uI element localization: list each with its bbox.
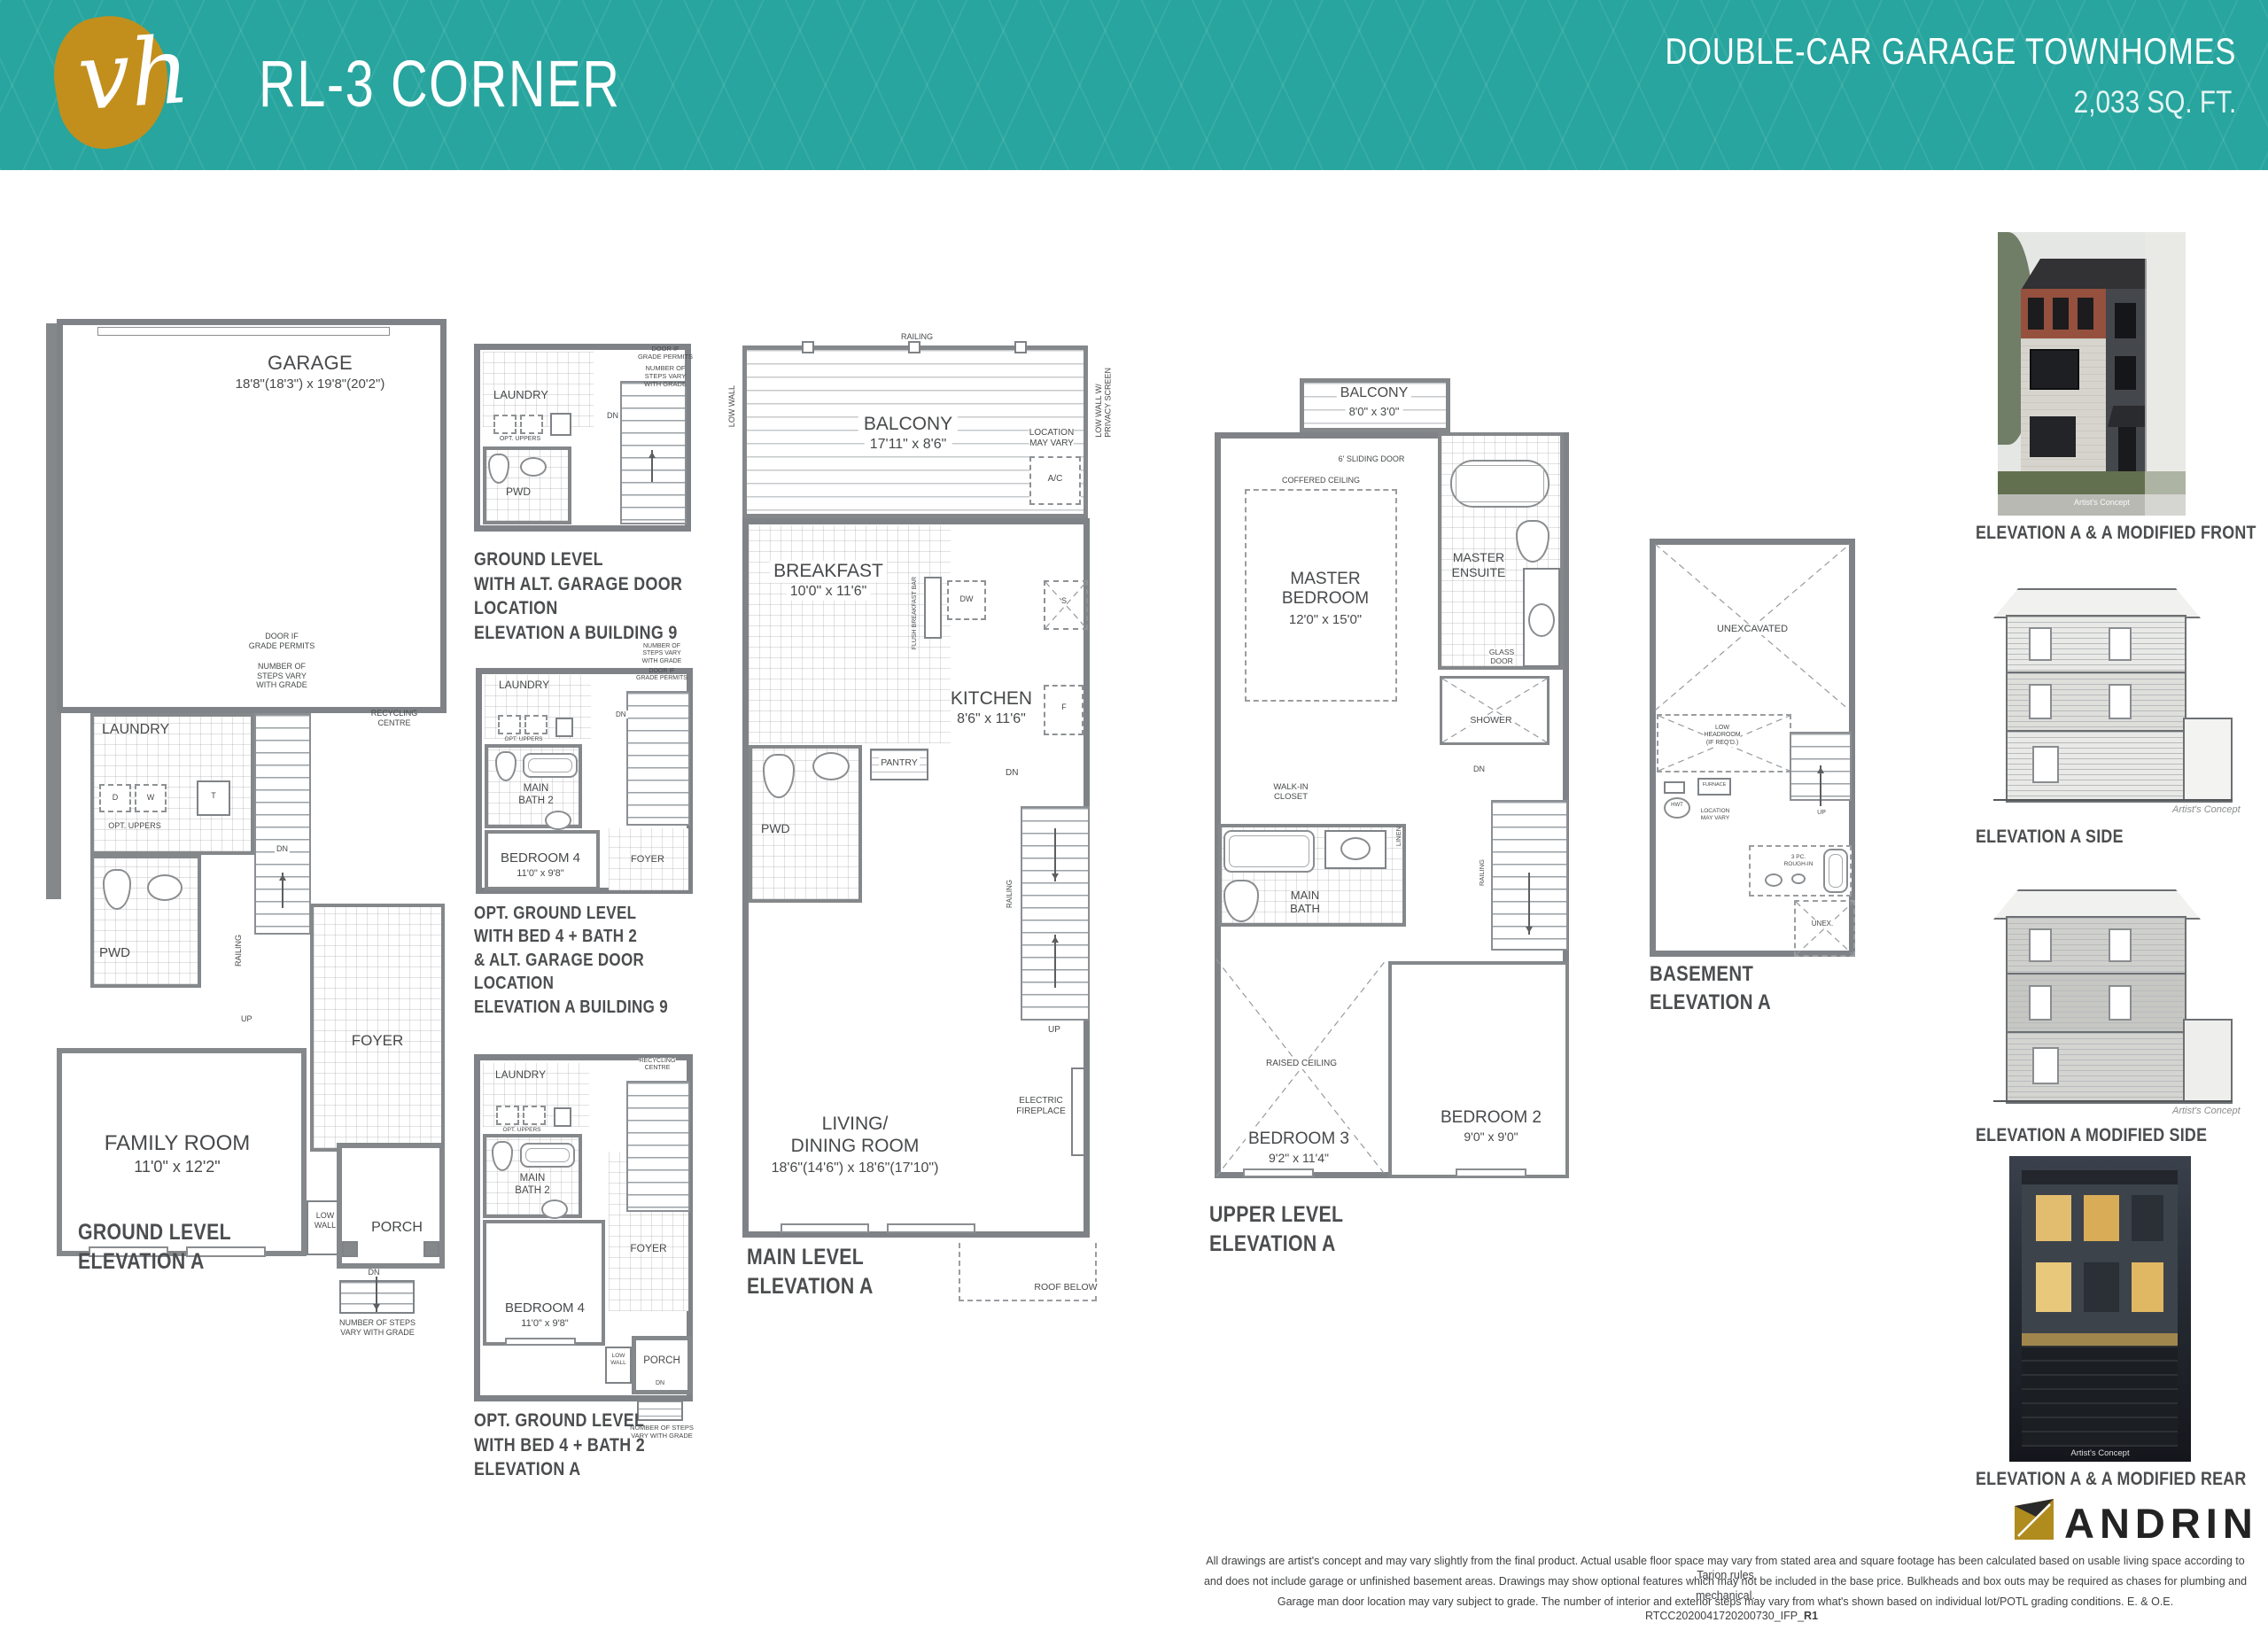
note-steps-vary: NUMBER OF STEPS VARY WITH GRADE <box>642 643 682 665</box>
plan-caption-alt2: OPT. GROUND LEVEL WITH BED 4 + BATH 2 & … <box>474 902 693 1019</box>
room-label-laundry: LAUNDRY <box>499 679 549 691</box>
room-label-bed2: BEDROOM 2 <box>1441 1108 1542 1128</box>
plan-caption-main: MAIN LEVEL ELEVATION A <box>747 1243 874 1301</box>
lit-window <box>2132 1262 2163 1312</box>
low-headroom-label: LOW HEADROOM (IF REQ'D.) <box>1704 725 1740 747</box>
dn-label: DN <box>656 1380 664 1387</box>
room-dims-bed4: 11'0" x 9'8" <box>521 1318 568 1330</box>
railing-post <box>1014 341 1027 353</box>
roughin-label: 3 PC. ROUGH-IN <box>1784 854 1814 867</box>
doc-code: RTCC2020041720200730_IFP_ <box>1645 1610 1804 1622</box>
note-steps-vary: NUMBER OF STEPS VARY WITH GRADE <box>256 662 307 690</box>
room-label-mainbath: MAIN BATH <box>1290 889 1320 916</box>
up-arrow-icon <box>1054 935 1056 988</box>
dn-label: DN <box>1473 765 1485 774</box>
wic-label: WALK-IN CLOSET <box>1273 782 1308 802</box>
room-label-laundry: LAUNDRY <box>493 388 548 401</box>
breakfast-island <box>924 577 942 639</box>
roof-below-label: ROOF BELOW <box>1031 1282 1099 1293</box>
room-label-foyer: FOYER <box>630 1242 666 1254</box>
tub-fixture <box>1450 460 1550 508</box>
up-arrow-icon <box>1820 765 1821 806</box>
bed4-window <box>505 1338 576 1346</box>
window <box>2030 349 2079 390</box>
window <box>2029 928 2052 962</box>
furnace-label: FURNACE <box>1703 782 1727 788</box>
breakfast-area <box>749 525 951 743</box>
plan-upper-level: BALCONY 8'0" x 3'0" 6' SLIDING DOOR COFF… <box>1208 377 1597 1262</box>
plan-caption-alt3: OPT. GROUND LEVEL WITH BED 4 + BATH 2 EL… <box>474 1409 645 1482</box>
down-arrow-icon <box>1528 873 1530 935</box>
dishwasher-label: DW <box>960 594 974 604</box>
room-label-balcony: BALCONY <box>1337 385 1411 402</box>
ac-label: A/C <box>1048 474 1063 485</box>
window <box>2109 928 2132 962</box>
entry-canopy <box>2108 406 2145 427</box>
up-label: UP <box>1048 1025 1060 1036</box>
glass-door-label: GLASS DOOR <box>1489 648 1514 665</box>
stairs <box>626 1081 690 1212</box>
bedroom2-room <box>1388 961 1569 1178</box>
sink-fixture <box>812 752 850 780</box>
room-dims-family: 11'0" x 12'2" <box>134 1158 220 1176</box>
room-dims-living: 18'6"(14'6") x 18'6"(17'10") <box>772 1161 939 1177</box>
hwt-label: HWT <box>1671 803 1683 809</box>
artists-concept-note: Artist's Concept <box>2172 804 2241 815</box>
shower-label: SHOWER <box>1468 715 1513 726</box>
low-wall-label: LOW WALL <box>315 1211 336 1230</box>
note-door-grade: DOOR IF GRADE PERMITS <box>638 345 693 361</box>
window <box>2029 627 2052 661</box>
stairs-dn-label: DN <box>275 844 290 854</box>
ground-line <box>1993 1100 2233 1102</box>
tub-fixture <box>520 1143 575 1168</box>
railing-post <box>802 341 814 353</box>
window <box>2032 746 2059 783</box>
plan-caption-ground: GROUND LEVEL ELEVATION A <box>78 1218 231 1277</box>
linen-label: LINEN <box>1395 827 1403 846</box>
window <box>2029 985 2052 1021</box>
room-label-family: FAMILY ROOM <box>105 1131 250 1156</box>
room-label-porch: PORCH <box>643 1355 680 1368</box>
plan-ground-bed4: LAUNDRY OPT. UPPERS MAIN BATH 2 BEDROOM … <box>474 1054 740 1479</box>
shower-box <box>1440 676 1550 745</box>
room-label-pwd: PWD <box>506 485 531 498</box>
lit-window <box>2036 1262 2071 1312</box>
elevation-rear-photo: Artist's Concept <box>2009 1156 2191 1462</box>
sink-roughin <box>1791 873 1806 884</box>
window <box>2115 303 2136 338</box>
porch-side <box>2183 718 2233 803</box>
plan-main-level: RAILING BALCONY 17'11" x 8'6" LOW WALL L… <box>740 332 1152 1329</box>
plan-caption-basement: BASEMENT ELEVATION A <box>1650 960 1771 1016</box>
room-dims-bed4: 11'0" x 9'8" <box>517 868 563 880</box>
dryer-box <box>496 1106 519 1125</box>
vh-logo: vh <box>64 19 204 129</box>
room-label-bed3: BEDROOM 3 <box>1246 1130 1352 1149</box>
stairs <box>626 691 690 826</box>
washer-box <box>523 1106 546 1125</box>
dryer-box <box>498 715 521 734</box>
toilet-roughin <box>1765 873 1783 887</box>
product-type: DOUBLE-CAR GARAGE TOWNHOMES <box>1665 30 2236 73</box>
unexcavated-label: UNEXCAVATED <box>1714 624 1790 635</box>
caption-elevation-front: ELEVATION A & A MODIFIED FRONT <box>1976 523 2256 544</box>
opt-uppers-label: OPT. UPPERS <box>500 436 540 443</box>
andrin-logo-icon <box>2013 1497 2055 1541</box>
tank-box <box>550 413 571 436</box>
window <box>2028 298 2044 330</box>
dn-label: DN <box>614 710 628 718</box>
railing-post <box>908 341 920 353</box>
garage-door <box>2022 1346 2178 1447</box>
room-label-garage: GARAGE <box>268 352 353 375</box>
disclaimer-text: Garage man door location may vary subjec… <box>1278 1595 2173 1608</box>
lit-window <box>2084 1195 2119 1241</box>
room-dims-bed3: 9'2" x 11'4" <box>1266 1151 1332 1166</box>
artists-concept-watermark: Artist's Concept <box>2074 498 2130 507</box>
andrin-logo <box>2013 1497 2055 1541</box>
room-label-breakfast: BREAKFAST <box>770 561 887 583</box>
pantry-label: PANTRY <box>879 757 920 768</box>
room-label-porch: PORCH <box>371 1220 423 1237</box>
tub-fixture <box>523 753 578 778</box>
caption-elevation-side: ELEVATION A SIDE <box>1976 827 2124 848</box>
room-label-mainbath2: MAIN BATH 2 <box>515 1173 549 1197</box>
washer-box <box>524 715 548 734</box>
header-right: DOUBLE-CAR GARAGE TOWNHOMES 2,033 SQ. FT… <box>1540 30 2236 120</box>
dn-label: DN <box>605 411 620 421</box>
room-label-mainbath2: MAIN BATH 2 <box>518 783 553 807</box>
fireplace-box <box>1071 1067 1085 1156</box>
plan-ground-bed4-altdoor: LAUNDRY OPT. UPPERS MAIN BATH 2 BEDROOM … <box>474 643 731 980</box>
opt-uppers-label: OPT. UPPERS <box>108 821 161 831</box>
room-dims-master: 12'0" x 15'0" <box>1289 612 1362 628</box>
bed2-window <box>1456 1168 1526 1177</box>
room-label-bed4: BEDROOM 4 <box>501 850 580 866</box>
faded-neighbour <box>2145 232 2186 516</box>
window <box>2032 1047 2059 1084</box>
room-dims-kitchen: 8'6" x 11'6" <box>957 711 1026 728</box>
porch-post <box>423 1241 439 1257</box>
doc-revision: R1 <box>1804 1610 1818 1622</box>
low-wall-label: LOW WALL <box>610 1353 625 1366</box>
lit-strip <box>2022 1333 2178 1346</box>
andrin-wordmark: ANDRIN <box>2064 1499 2258 1548</box>
living-window <box>781 1223 869 1233</box>
plan-basement: UNEXCAVATED LOW HEADROOM (IF REQ'D.) HWT… <box>1650 537 1889 1033</box>
sliding-door-label: 6' SLIDING DOOR <box>1339 454 1405 464</box>
roof <box>2014 259 2147 289</box>
hwt-rect <box>1664 781 1685 794</box>
tub-fixture <box>1223 830 1315 873</box>
tank-box <box>554 1107 571 1127</box>
room-label-pwd: PWD <box>761 821 790 836</box>
header-bar: vh RL-3 CORNER DOUBLE-CAR GARAGE TOWNHOM… <box>0 0 2268 170</box>
room-label-living: LIVING/ DINING ROOM <box>791 1114 920 1158</box>
stove-label: S <box>1061 596 1067 606</box>
ground-line <box>1993 799 2233 801</box>
room-label-master: MASTER BEDROOM <box>1282 570 1369 609</box>
plan-caption-alt1: GROUND LEVEL WITH ALT. GARAGE DOOR LOCAT… <box>474 547 693 646</box>
window <box>2109 985 2132 1021</box>
porch-side <box>2183 1019 2233 1104</box>
window <box>2078 298 2093 330</box>
room-dims-garage: 18'8"(18'3") x 19'8"(20'2") <box>236 377 385 392</box>
room-dims-bed2: 9'0" x 9'0" <box>1464 1130 1518 1145</box>
page-title: RL-3 CORNER <box>259 46 620 121</box>
tub-fixture <box>1823 849 1848 893</box>
privacy-screen-label: LOW WALL W/ PRIVACY SCREEN <box>1094 368 1113 438</box>
room-label-kitchen: KITCHEN <box>951 688 1032 710</box>
flush-bar-label: FLUSH BREAKFAST BAR <box>912 577 919 649</box>
coffered-label: COFFERED CEILING <box>1282 476 1360 485</box>
note-steps-vary: NUMBER OF STEPS VARY WITH GRADE <box>644 365 687 389</box>
elevation-modside-drawing <box>1976 886 2241 1118</box>
fireplace-label: ELECTRIC FIREPLACE <box>1016 1096 1066 1117</box>
railing-label: RAILING <box>1479 859 1487 886</box>
caption-elevation-modside: ELEVATION A MODIFIED SIDE <box>1976 1125 2207 1146</box>
artists-concept-note: Artist's Concept <box>2172 1106 2241 1116</box>
raised-ceiling-label: RAISED CEILING <box>1263 1059 1340 1069</box>
room-label-laundry: LAUNDRY <box>495 1068 546 1081</box>
sink-fixture <box>147 874 183 901</box>
opt-uppers-label: OPT. UPPERS <box>505 736 543 743</box>
room-dims-balcony: 17'11" x 8'6" <box>865 437 952 454</box>
unex-area <box>1794 900 1855 957</box>
sink-fixture <box>1340 837 1371 860</box>
room-label-foyer: FOYER <box>631 854 664 866</box>
parapet <box>2022 1170 2178 1184</box>
note-door-grade: DOOR IF GRADE PERMITS <box>249 632 315 650</box>
dn-label: DN <box>1006 768 1018 779</box>
porch-post <box>342 1241 358 1257</box>
unex-label: UNEX. <box>1812 920 1833 928</box>
window <box>2109 627 2132 661</box>
room-label-foyer: FOYER <box>352 1032 404 1050</box>
low-wall-label: LOW WALL <box>727 385 736 427</box>
dryer-label: D <box>113 793 119 803</box>
disclaimer-line3: Garage man door location may vary subjec… <box>1200 1595 2250 1623</box>
washer-label: W <box>147 793 155 803</box>
tank-box <box>555 718 573 737</box>
room-label-pwd: PWD <box>99 945 130 961</box>
up-label: UP <box>1817 810 1826 817</box>
location-vary-label: LOCATION MAY VARY <box>1701 808 1730 821</box>
bed3-window <box>1243 1168 1314 1177</box>
plan-ground-alt-garage: LAUNDRY OPT. UPPERS PWD DN DOOR IF GRADE… <box>474 344 731 609</box>
room-dims-balcony: 8'0" x 3'0" <box>1346 405 1403 418</box>
note-steps-vary-porch: NUMBER OF STEPS VARY WITH GRADE <box>339 1318 416 1337</box>
up-arrow-icon <box>651 450 653 482</box>
sink-fixture <box>1528 603 1555 637</box>
fridge-label: F <box>1061 703 1067 712</box>
elevation-front-photo: Artist's Concept <box>1998 232 2186 516</box>
roof-outline <box>1993 588 2201 618</box>
down-arrow-icon <box>1054 828 1056 881</box>
note-door-grade: DOOR IF GRADE PERMITS <box>636 668 687 683</box>
room-dims-breakfast: 10'0" x 11'6" <box>787 584 871 601</box>
note-recycling: RECYCLING CENTRE <box>640 1058 676 1073</box>
washer-box <box>520 415 543 434</box>
sink-fixture <box>541 1199 568 1219</box>
square-footage: 2,033 SQ. FT. <box>1644 85 2236 120</box>
roof-outline <box>1993 889 2201 920</box>
artists-concept-watermark: Artist's Concept <box>2009 1448 2191 1458</box>
plan-caption-upper: UPPER LEVEL ELEVATION A <box>1209 1200 1343 1259</box>
window <box>2053 298 2069 330</box>
dryer-box <box>493 415 517 434</box>
dark-window <box>2084 1262 2119 1312</box>
tank-label: T <box>211 791 216 801</box>
sink-fixture <box>545 811 571 830</box>
floorplan-sheet: vh RL-3 CORNER DOUBLE-CAR GARAGE TOWNHOM… <box>0 0 2268 1638</box>
foyer-room <box>310 904 445 1152</box>
railing-label: RAILING <box>234 935 243 966</box>
sink-fixture <box>520 457 547 477</box>
elevation-side-drawing <box>1976 585 2241 817</box>
up-arrow-icon <box>282 873 283 908</box>
lit-window <box>2036 1195 2071 1241</box>
location-vary-label: LOCATION MAY VARY <box>1029 428 1074 449</box>
note-recycling: RECYCLING CENTRE <box>371 709 418 727</box>
window <box>2029 684 2052 719</box>
window <box>2115 356 2136 390</box>
plan-ground-level: GARAGE 18'8"(18'3") x 19'8"(20'2") DOOR … <box>44 314 465 1351</box>
room-label-laundry: LAUNDRY <box>102 722 169 739</box>
room-label-bed4: BEDROOM 4 <box>505 1300 585 1316</box>
up-label: UP <box>241 1014 252 1024</box>
room-label-balcony: BALCONY <box>858 414 958 436</box>
room-label-ensuite: MASTER ENSUITE <box>1452 550 1506 579</box>
caption-elevation-rear: ELEVATION A & A MODIFIED REAR <box>1976 1469 2247 1490</box>
window <box>2109 684 2132 719</box>
window <box>2030 416 2076 457</box>
dark-window <box>2132 1195 2163 1241</box>
down-arrow-icon <box>376 1277 377 1312</box>
porch-dn-label: DN <box>369 1268 380 1277</box>
garage-door-panel <box>97 327 390 336</box>
opt-uppers-label: OPT. UPPERS <box>503 1127 541 1134</box>
living-window <box>887 1223 975 1233</box>
railing-label: RAILING <box>1006 880 1014 908</box>
